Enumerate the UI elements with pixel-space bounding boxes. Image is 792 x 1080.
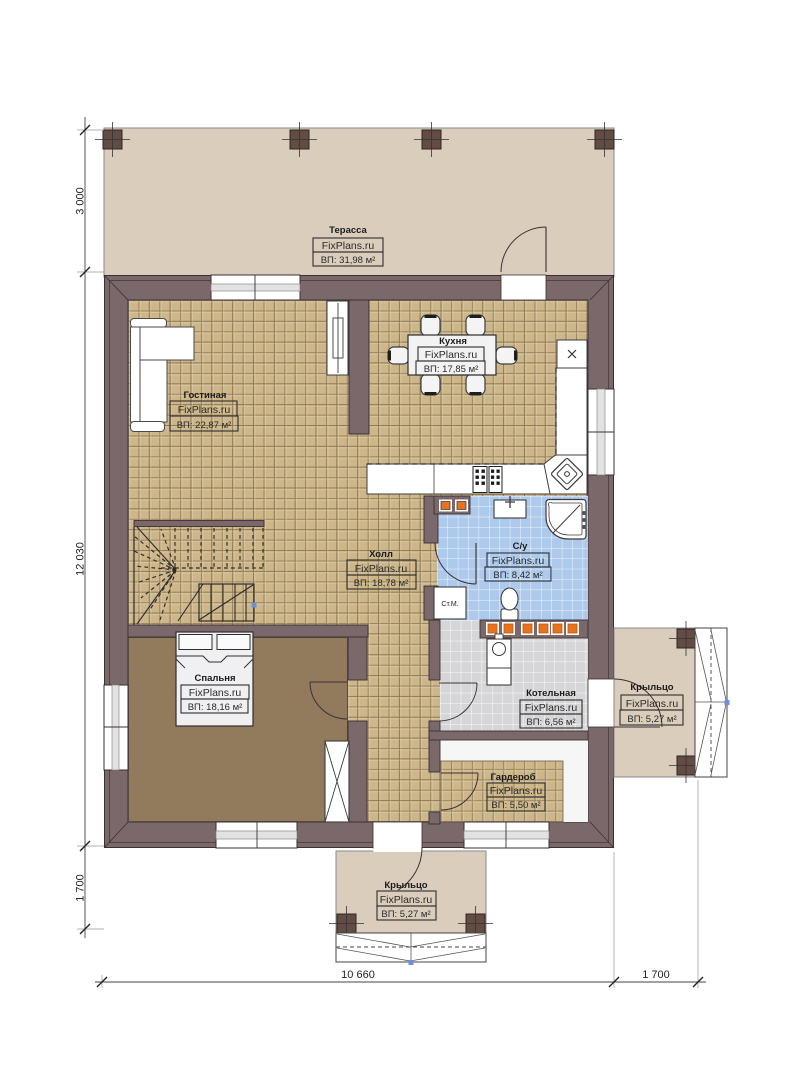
svg-text:Крыльцо: Крыльцо — [630, 682, 673, 693]
svg-text:Крыльцо: Крыльцо — [384, 880, 427, 891]
svg-text:Ст.М.: Ст.М. — [441, 601, 458, 608]
svg-text:FixPlans.ru: FixPlans.ru — [322, 240, 375, 252]
svg-text:1 700: 1 700 — [642, 969, 670, 981]
svg-text:ВП: 5,27 м²: ВП: 5,27 м² — [381, 909, 430, 920]
svg-text:FixPlans.ru: FixPlans.ru — [492, 555, 545, 567]
svg-text:ВП: 8,42 м²: ВП: 8,42 м² — [493, 570, 542, 581]
svg-text:FixPlans.ru: FixPlans.ru — [490, 785, 543, 797]
svg-text:FixPlans.ru: FixPlans.ru — [178, 404, 231, 416]
svg-text:Терасса: Терасса — [329, 225, 367, 236]
svg-text:ВП: 22,87 м²: ВП: 22,87 м² — [177, 420, 232, 431]
svg-text:FixPlans.ru: FixPlans.ru — [355, 563, 408, 575]
svg-text:Гардероб: Гардероб — [491, 772, 536, 783]
svg-text:12 030: 12 030 — [75, 542, 87, 576]
svg-text:Гостиная: Гостиная — [184, 390, 227, 401]
svg-text:ВП: 17,85 м²: ВП: 17,85 м² — [424, 364, 479, 375]
svg-text:ВП: 18,16 м²: ВП: 18,16 м² — [188, 702, 243, 713]
svg-text:FixPlans.ru: FixPlans.ru — [425, 349, 478, 361]
svg-text:10 660: 10 660 — [341, 969, 375, 981]
svg-text:Спальня: Спальня — [194, 673, 235, 684]
svg-text:ВП: 31,98 м²: ВП: 31,98 м² — [321, 255, 376, 266]
svg-text:Котельная: Котельная — [526, 688, 576, 699]
svg-text:Кухня: Кухня — [439, 336, 467, 347]
svg-text:FixPlans.ru: FixPlans.ru — [525, 702, 578, 714]
svg-text:FixPlans.ru: FixPlans.ru — [626, 698, 679, 710]
svg-text:ВП: 5,27 м²: ВП: 5,27 м² — [627, 714, 676, 725]
svg-text:ВП: 18,78 м²: ВП: 18,78 м² — [354, 578, 409, 589]
svg-text:FixPlans.ru: FixPlans.ru — [189, 687, 242, 699]
svg-text:Холл: Холл — [369, 549, 393, 560]
svg-text:FixPlans.ru: FixPlans.ru — [380, 894, 433, 906]
svg-text:ВП: 5,50 м²: ВП: 5,50 м² — [491, 800, 540, 811]
svg-text:ВП: 6,56 м²: ВП: 6,56 м² — [526, 717, 575, 728]
svg-text:С/у: С/у — [513, 541, 529, 552]
svg-text:1 700: 1 700 — [75, 874, 87, 902]
svg-text:3 000: 3 000 — [75, 187, 87, 215]
